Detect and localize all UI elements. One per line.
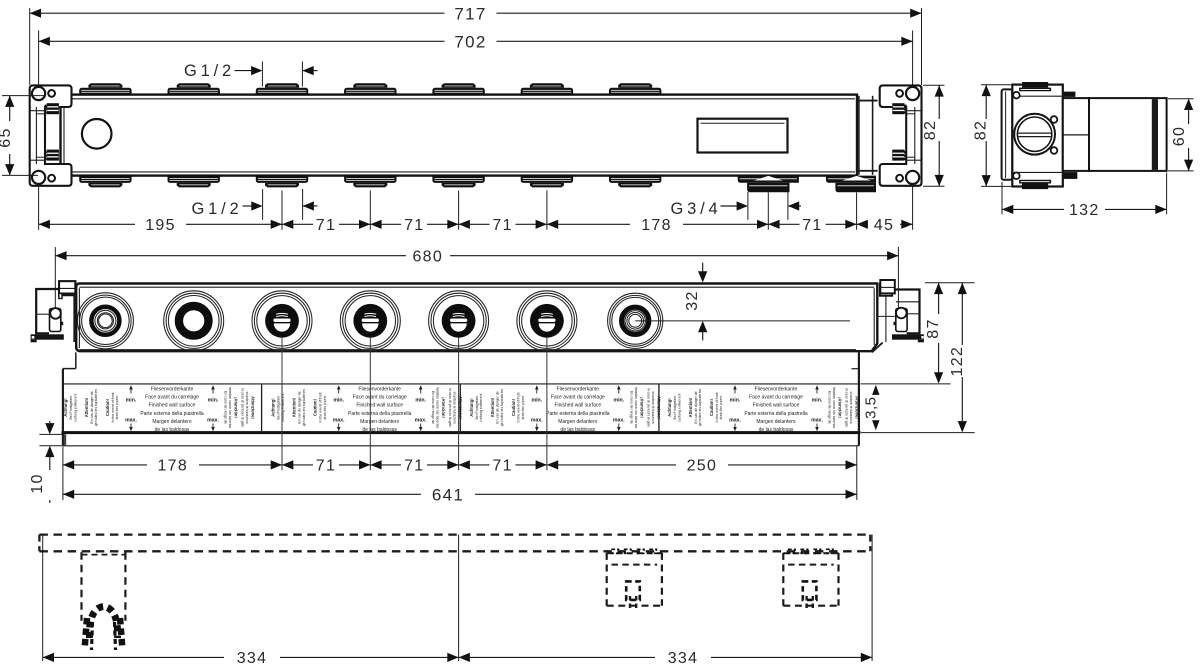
svg-text:max.: max.	[333, 417, 345, 423]
svg-text:En caso de riesgo de: En caso de riesgo de	[828, 391, 832, 424]
svg-text:En cas de danger de: En cas de danger de	[298, 391, 302, 423]
svg-text:drain the pipes!: drain the pipes!	[323, 396, 327, 420]
svg-text:Leitung entleeren!: Leitung entleeren!	[479, 393, 483, 421]
svg-text:71: 71	[492, 458, 512, 475]
svg-text:gel videz les tuyauteries: gel videz les tuyauteries	[302, 389, 306, 427]
svg-text:min.: min.	[208, 397, 219, 403]
svg-text:Bei Frostgefahr: Bei Frostgefahr	[69, 395, 73, 420]
svg-text:122: 122	[949, 346, 966, 377]
svg-text:Achtung!: Achtung!	[469, 398, 474, 416]
svg-text:Fliesenvorderkante: Fliesenvorderkante	[358, 387, 401, 393]
svg-text:G3/4: G3/4	[671, 200, 722, 218]
svg-text:min.: min.	[730, 397, 741, 403]
svg-text:In the event of frost: In the event of frost	[319, 392, 323, 422]
svg-text:min.: min.	[613, 397, 624, 403]
svg-text:gel videz les tuyauteries: gel videz les tuyauteries	[500, 389, 504, 427]
svg-text:132: 132	[1069, 202, 1100, 219]
svg-text:71: 71	[492, 217, 512, 234]
svg-text:Fliesenvorderkante: Fliesenvorderkante	[755, 387, 798, 393]
svg-text:82: 82	[922, 120, 939, 140]
svg-text:heladas vaciar las tuberias: heladas vaciar las tuberias	[228, 387, 232, 429]
svg-text:Caution!: Caution!	[709, 399, 714, 416]
svg-text:En caso de riesgo de: En caso de riesgo de	[629, 391, 633, 424]
svg-text:G1/2: G1/2	[192, 200, 243, 218]
svg-text:Finished wall surface: Finished wall surface	[554, 403, 601, 409]
svg-text:max.: max.	[125, 417, 137, 423]
svg-text:heladas vaciar las tuberias: heladas vaciar las tuberias	[832, 387, 836, 429]
svg-text:min.: min.	[531, 397, 542, 403]
svg-text:Caution!: Caution!	[511, 399, 516, 416]
svg-text:195: 195	[145, 217, 176, 234]
svg-text:heladas vaciar las tuberias: heladas vaciar las tuberias	[436, 387, 440, 429]
svg-text:Bei Frostgefahr: Bei Frostgefahr	[475, 395, 479, 420]
svg-text:334: 334	[237, 650, 268, 667]
svg-text:82: 82	[973, 120, 990, 140]
svg-text:svuotare le tubazioni: svuotare le tubazioni	[849, 391, 853, 423]
svg-text:svuotare le tubazioni: svuotare le tubazioni	[453, 391, 457, 423]
svg-text:gel videz les tuyauteries: gel videz les tuyauteries	[698, 389, 702, 427]
svg-text:de las baldosas: de las baldosas	[362, 427, 397, 433]
svg-text:Margen delantero: Margen delantero	[360, 419, 399, 425]
svg-text:641: 641	[432, 486, 464, 505]
svg-text:svuotare le tubazioni: svuotare le tubazioni	[651, 391, 655, 423]
svg-text:250: 250	[687, 458, 718, 475]
svg-text:In the event of frost: In the event of frost	[111, 392, 115, 422]
svg-text:Finished wall surface: Finished wall surface	[356, 403, 403, 409]
svg-text:Attenzione!: Attenzione!	[656, 396, 661, 419]
svg-text:Attenzione!: Attenzione!	[855, 396, 860, 419]
svg-text:max.: max.	[207, 417, 219, 423]
svg-text:3,5: 3,5	[862, 397, 879, 419]
svg-text:In caso di pericolo di gelo: In caso di pericolo di gelo	[646, 388, 650, 428]
svg-text:In the event of frost: In the event of frost	[517, 392, 521, 422]
svg-text:Parte esterna della piastrella: Parte esterna della piastrella	[744, 411, 808, 417]
svg-text:Finished wall surface: Finished wall surface	[753, 403, 800, 409]
svg-text:32: 32	[684, 290, 701, 310]
svg-text:Achtung!: Achtung!	[667, 398, 672, 416]
svg-text:Parte esterna della piastrella: Parte esterna della piastrella	[546, 411, 610, 417]
svg-text:max.: max.	[613, 417, 625, 423]
svg-text:45: 45	[874, 217, 894, 234]
svg-text:min.: min.	[126, 397, 137, 403]
svg-text:87: 87	[925, 318, 942, 338]
svg-text:min.: min.	[333, 397, 344, 403]
svg-text:Margen delantero: Margen delantero	[558, 419, 597, 425]
svg-text:71: 71	[404, 217, 424, 234]
svg-text:Leitung entleeren!: Leitung entleeren!	[73, 393, 77, 421]
svg-text:Achtung!: Achtung!	[271, 398, 276, 416]
svg-text:de las baldosas: de las baldosas	[560, 427, 595, 433]
svg-text:Attention!: Attention!	[292, 398, 297, 418]
svg-text:Attention!: Attention!	[688, 398, 693, 418]
svg-text:max.: max.	[811, 417, 823, 423]
svg-text:Parte esterna della piastrella: Parte esterna della piastrella	[140, 411, 204, 417]
svg-text:178: 178	[641, 217, 672, 234]
svg-text:Caution!: Caution!	[313, 399, 318, 416]
svg-text:Face avant du carrelage: Face avant du carrelage	[551, 395, 605, 401]
svg-text:¡Atención!: ¡Atención!	[838, 397, 843, 418]
svg-text:drain the pipes!: drain the pipes!	[115, 396, 119, 420]
svg-text:Bei Frostgefahr: Bei Frostgefahr	[673, 395, 677, 420]
svg-text:de las baldosas: de las baldosas	[155, 427, 190, 433]
svg-text:svuotare le tubazioni: svuotare le tubazioni	[245, 391, 249, 423]
svg-text:gel videz les tuyauteries: gel videz les tuyauteries	[94, 389, 98, 427]
svg-text:In caso di pericolo di gelo: In caso di pericolo di gelo	[448, 388, 452, 428]
svg-text:178: 178	[157, 458, 188, 475]
svg-text:¡Atención!: ¡Atención!	[441, 397, 446, 418]
svg-text:71: 71	[404, 458, 424, 475]
svg-text:drain the pipes!: drain the pipes!	[719, 396, 723, 420]
svg-text:In the event of frost: In the event of frost	[715, 392, 719, 422]
svg-text:Attenzione!: Attenzione!	[251, 396, 256, 419]
svg-text:Margen delantero: Margen delantero	[152, 419, 191, 425]
svg-text:min.: min.	[415, 397, 426, 403]
svg-text:¡Atención!: ¡Atención!	[234, 397, 239, 418]
svg-text:Parte esterna della piastrella: Parte esterna della piastrella	[348, 411, 412, 417]
svg-text:En caso de riesgo de: En caso de riesgo de	[431, 391, 435, 424]
svg-text:Bei Frostgefahr: Bei Frostgefahr	[277, 395, 281, 420]
svg-text:En cas de danger de: En cas de danger de	[496, 391, 500, 423]
svg-text:max.: max.	[531, 417, 543, 423]
svg-text:min.: min.	[812, 397, 823, 403]
svg-text:Finished wall surface: Finished wall surface	[149, 403, 196, 409]
svg-text:71: 71	[316, 458, 336, 475]
svg-text:Achtung!: Achtung!	[63, 398, 68, 416]
svg-text:In caso di pericolo di gelo: In caso di pericolo di gelo	[845, 388, 849, 428]
svg-text:65: 65	[0, 127, 14, 147]
svg-text:Attention!: Attention!	[84, 398, 89, 418]
svg-text:Attention!: Attention!	[490, 398, 495, 418]
svg-text:En caso de riesgo de: En caso de riesgo de	[224, 391, 228, 424]
svg-text:Caution!: Caution!	[105, 399, 110, 416]
svg-text:Face avant du carrelage: Face avant du carrelage	[353, 395, 407, 401]
svg-text:Face avant du carrelage: Face avant du carrelage	[749, 395, 803, 401]
svg-text:max.: max.	[415, 417, 427, 423]
svg-text:G1/2: G1/2	[184, 62, 235, 80]
svg-text:drain the pipes!: drain the pipes!	[521, 396, 525, 420]
svg-text:60: 60	[1171, 126, 1188, 146]
svg-text:En cas de danger de: En cas de danger de	[90, 391, 94, 423]
svg-text:Margen delantero: Margen delantero	[756, 419, 795, 425]
svg-text:de las baldosas: de las baldosas	[759, 427, 794, 433]
svg-text:En cas de danger de: En cas de danger de	[694, 391, 698, 423]
svg-text:Face avant du carrelage: Face avant du carrelage	[145, 395, 199, 401]
svg-text:71: 71	[316, 217, 336, 234]
svg-text:In caso di pericolo di gelo: In caso di pericolo di gelo	[241, 388, 245, 428]
svg-text:Fliesenvorderkante: Fliesenvorderkante	[151, 387, 194, 393]
svg-text:334: 334	[668, 650, 699, 667]
svg-text:10: 10	[29, 473, 46, 493]
svg-text:702: 702	[454, 32, 486, 51]
svg-text:71: 71	[802, 217, 822, 234]
svg-text:717: 717	[454, 4, 486, 23]
svg-text:Fliesenvorderkante: Fliesenvorderkante	[557, 387, 600, 393]
svg-text:max.: max.	[729, 417, 741, 423]
svg-text:Leitung entleeren!: Leitung entleeren!	[677, 393, 681, 421]
svg-text:680: 680	[412, 249, 443, 266]
svg-text:¡Atención!: ¡Atención!	[639, 397, 644, 418]
svg-text:heladas vaciar las tuberias: heladas vaciar las tuberias	[634, 387, 638, 429]
